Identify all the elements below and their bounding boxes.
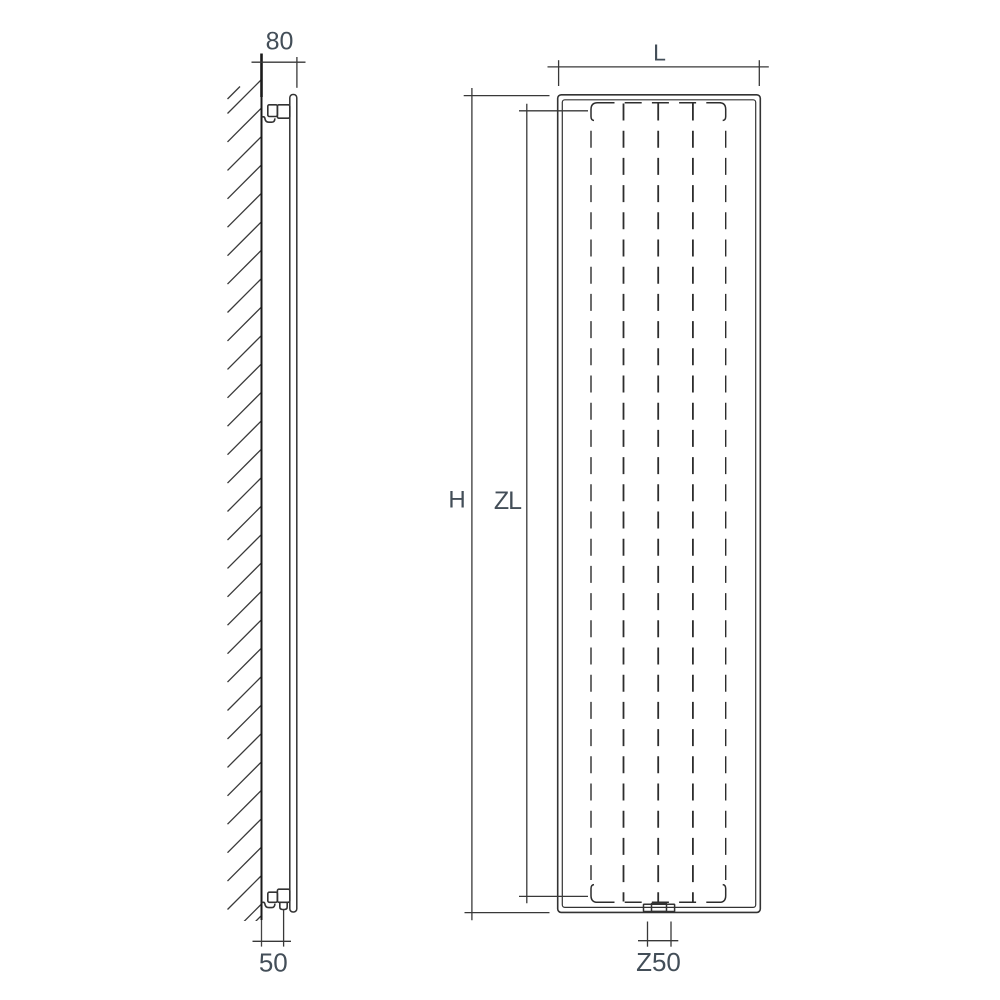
svg-text:50: 50 bbox=[259, 948, 288, 978]
svg-text:80: 80 bbox=[266, 28, 294, 56]
svg-text:Z50: Z50 bbox=[636, 947, 681, 977]
svg-text:H: H bbox=[448, 487, 465, 514]
svg-text:ZL: ZL bbox=[494, 487, 522, 515]
svg-text:L: L bbox=[653, 40, 666, 66]
